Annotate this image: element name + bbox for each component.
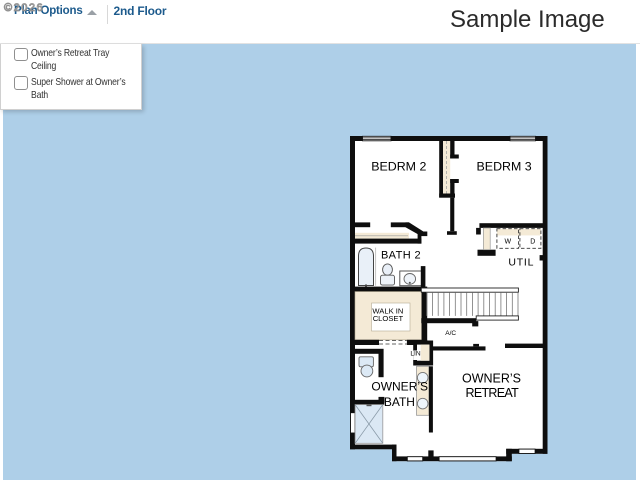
svg-text:OWNER’S: OWNER’S xyxy=(462,372,521,386)
svg-text:D: D xyxy=(530,239,535,246)
svg-text:LIN: LIN xyxy=(410,350,420,357)
svg-text:RETREAT: RETREAT xyxy=(466,386,520,400)
svg-text:BEDRM 2: BEDRM 2 xyxy=(371,159,426,173)
svg-text:BATH: BATH xyxy=(384,395,415,409)
svg-text:UTIL: UTIL xyxy=(508,257,534,269)
svg-text:OWNER’S: OWNER’S xyxy=(371,380,428,394)
svg-text:BEDRM 3: BEDRM 3 xyxy=(477,159,532,173)
svg-text:CLOSET: CLOSET xyxy=(373,314,404,323)
svg-text:W: W xyxy=(504,239,511,246)
svg-text:BATH 2: BATH 2 xyxy=(381,250,421,262)
svg-text:A/C: A/C xyxy=(445,330,456,337)
